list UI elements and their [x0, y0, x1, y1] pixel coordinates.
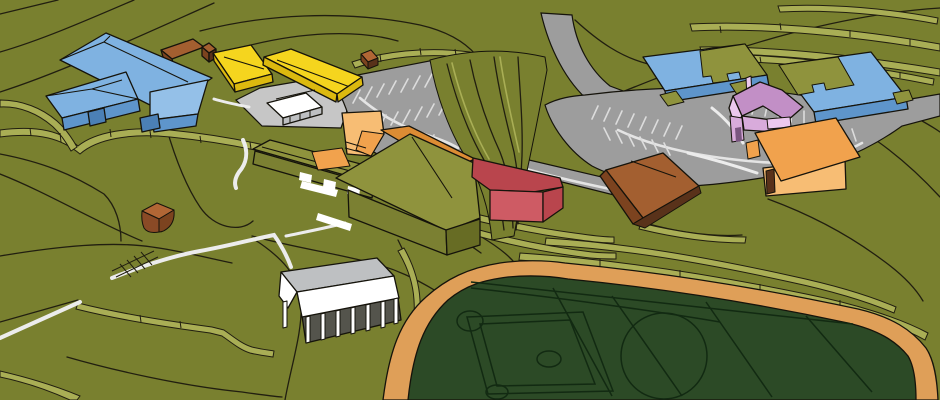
column	[381, 301, 385, 328]
column	[306, 316, 310, 343]
column	[394, 298, 398, 324]
column	[321, 313, 325, 340]
column	[366, 304, 370, 331]
column	[351, 307, 355, 334]
school-entry-block	[88, 108, 106, 126]
model-stage	[0, 0, 940, 400]
red-wall-front	[490, 190, 543, 222]
school-entry-block	[140, 114, 160, 132]
orange-door	[766, 169, 775, 194]
column	[283, 301, 287, 328]
orange-annex	[746, 140, 760, 159]
column	[336, 310, 340, 337]
site-model-viewport[interactable]	[0, 0, 940, 400]
pink-doorway	[735, 127, 742, 142]
